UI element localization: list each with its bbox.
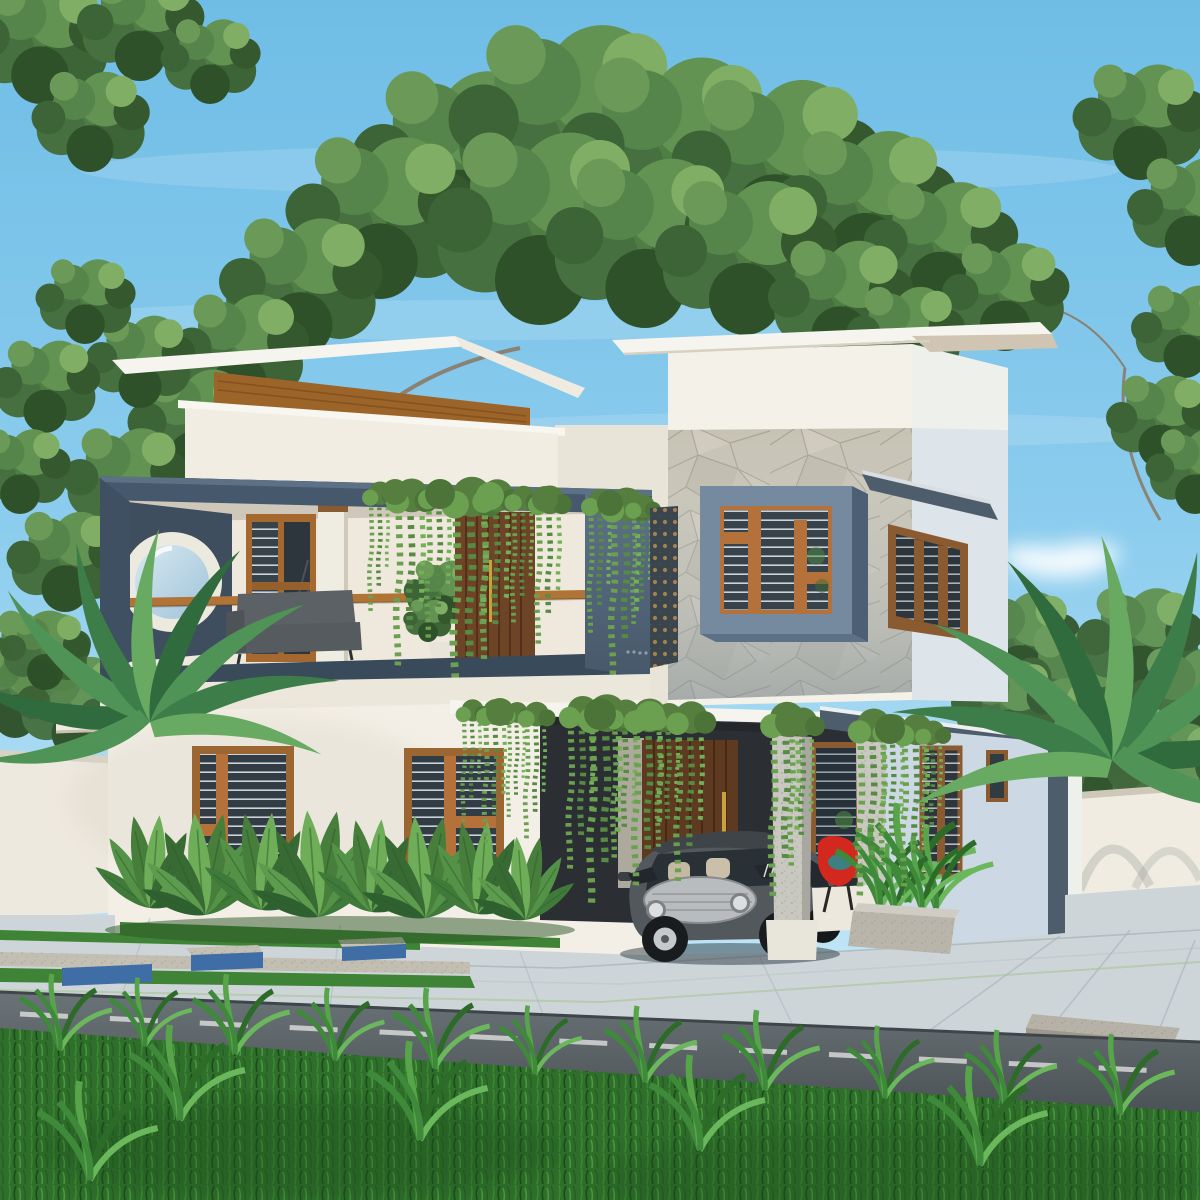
car-foglight (648, 902, 665, 919)
compound-wall-right (1065, 783, 1200, 898)
box-frame-side (852, 486, 868, 642)
box-frame-window (700, 486, 868, 642)
car-seat (706, 858, 730, 878)
villa-render-canvas (0, 0, 1200, 1200)
door-handle (489, 560, 492, 622)
pillar-base (766, 920, 818, 960)
jali-screen (650, 506, 678, 668)
box-frame-bottom (700, 634, 868, 642)
rendered-scene (0, 0, 1200, 1200)
car-foglight (732, 895, 749, 912)
